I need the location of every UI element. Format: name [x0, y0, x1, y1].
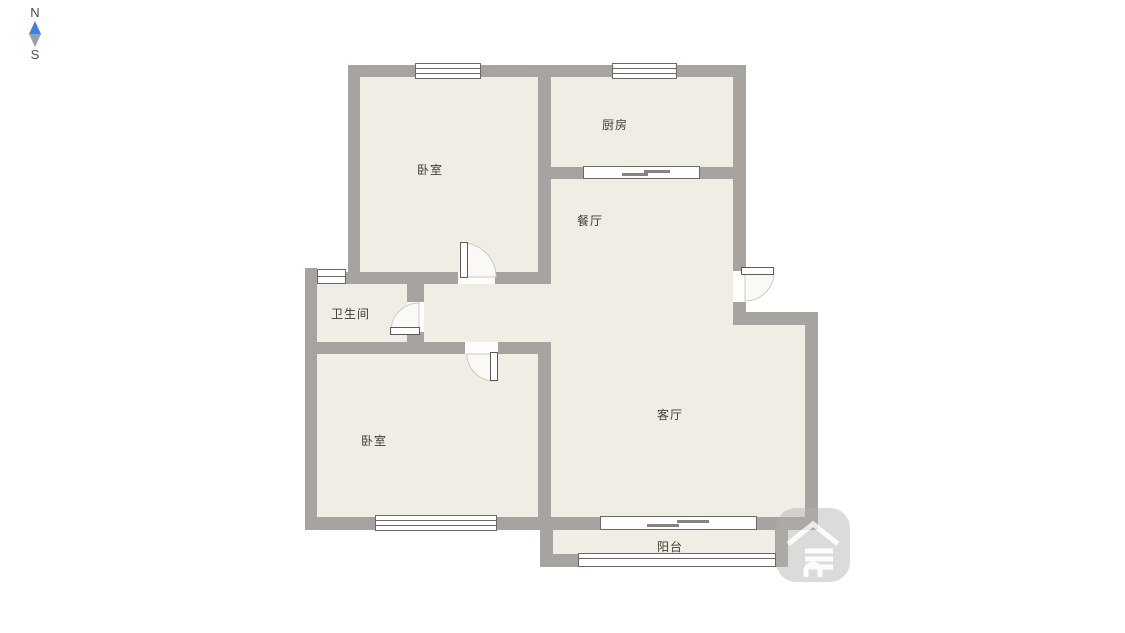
window-pane-line	[579, 558, 775, 559]
door-leaf-bedroom-top	[460, 242, 468, 278]
label-balcony: 阳台	[657, 538, 683, 555]
window-pane-line	[613, 68, 676, 69]
window-pane-line	[376, 525, 496, 526]
window-kitchen	[612, 63, 677, 79]
compass-south-label: S	[31, 48, 40, 62]
sliding-door-balcony	[600, 516, 757, 530]
door-leaf-entrance	[741, 267, 774, 275]
label-bedroom-top: 卧室	[417, 161, 443, 178]
label-kitchen: 厨房	[602, 116, 628, 133]
window-balcony	[578, 553, 776, 567]
sliding-panel	[677, 520, 709, 523]
sliding-door-kitchen	[583, 166, 700, 179]
window-pane-line	[376, 520, 496, 521]
window-pane-line	[416, 73, 480, 74]
window-bathroom	[317, 269, 346, 284]
house-logo-icon	[775, 507, 851, 583]
sliding-panel	[622, 173, 648, 176]
door-swing-arcs	[0, 0, 1125, 633]
label-dining: 餐厅	[577, 212, 603, 229]
compass-needle-icon	[28, 20, 42, 48]
label-living: 客厅	[657, 406, 683, 423]
window-bedroom-top	[415, 63, 481, 79]
door-arc-entrance	[745, 272, 774, 301]
window-bedroom-bottom	[375, 515, 497, 531]
compass-north-label: N	[30, 6, 39, 20]
window-pane-line	[613, 73, 676, 74]
floor-plan: N S	[0, 0, 1125, 633]
sliding-panel	[644, 170, 670, 173]
door-leaf-bathroom	[390, 327, 420, 335]
sliding-panel	[647, 524, 679, 527]
compass: N S	[22, 6, 48, 62]
label-bedroom-bottom: 卧室	[361, 432, 387, 449]
door-leaf-bedroom-bottom	[490, 352, 498, 381]
label-bathroom: 卫生间	[331, 305, 370, 322]
window-pane-line	[318, 276, 345, 277]
window-pane-line	[416, 68, 480, 69]
